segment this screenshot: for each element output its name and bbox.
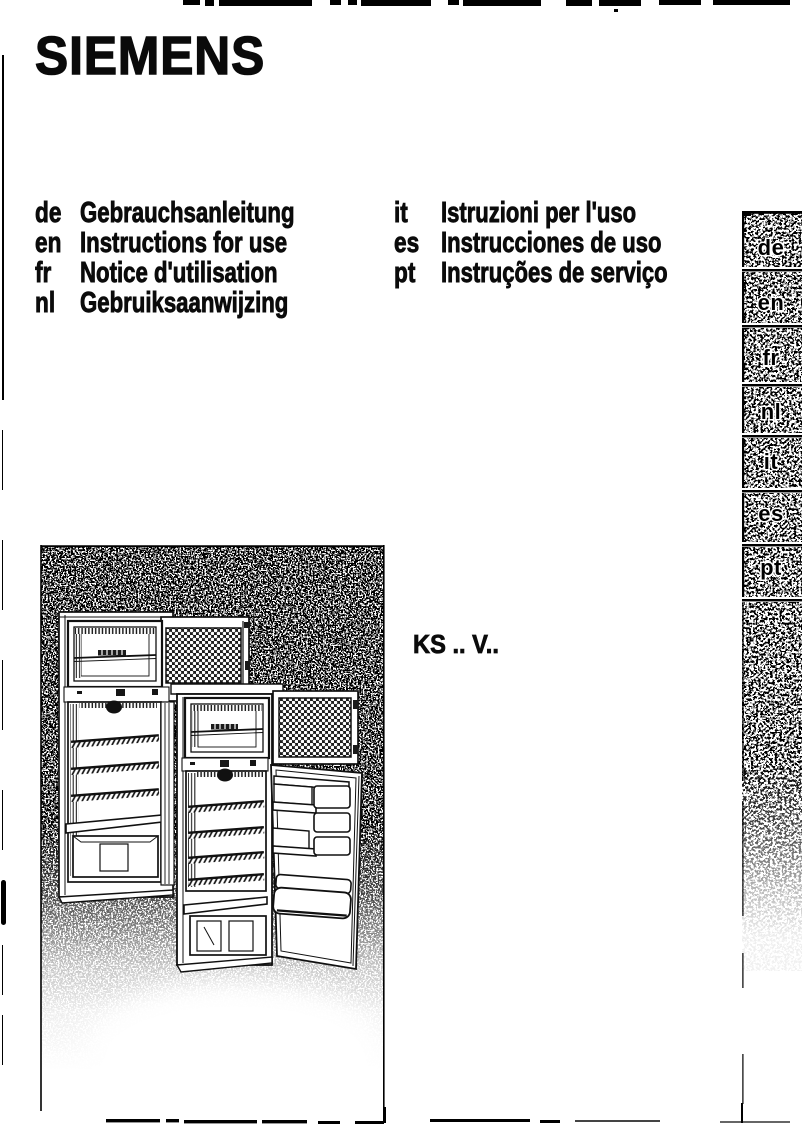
svg-text:nl: nl [761,399,782,424]
svg-text:pt: pt [760,555,782,580]
svg-text:it: it [764,449,779,474]
svg-text:fr: fr [763,345,780,370]
svg-text:de: de [758,235,785,260]
svg-text:en: en [758,290,785,315]
svg-text:es: es [758,501,783,526]
